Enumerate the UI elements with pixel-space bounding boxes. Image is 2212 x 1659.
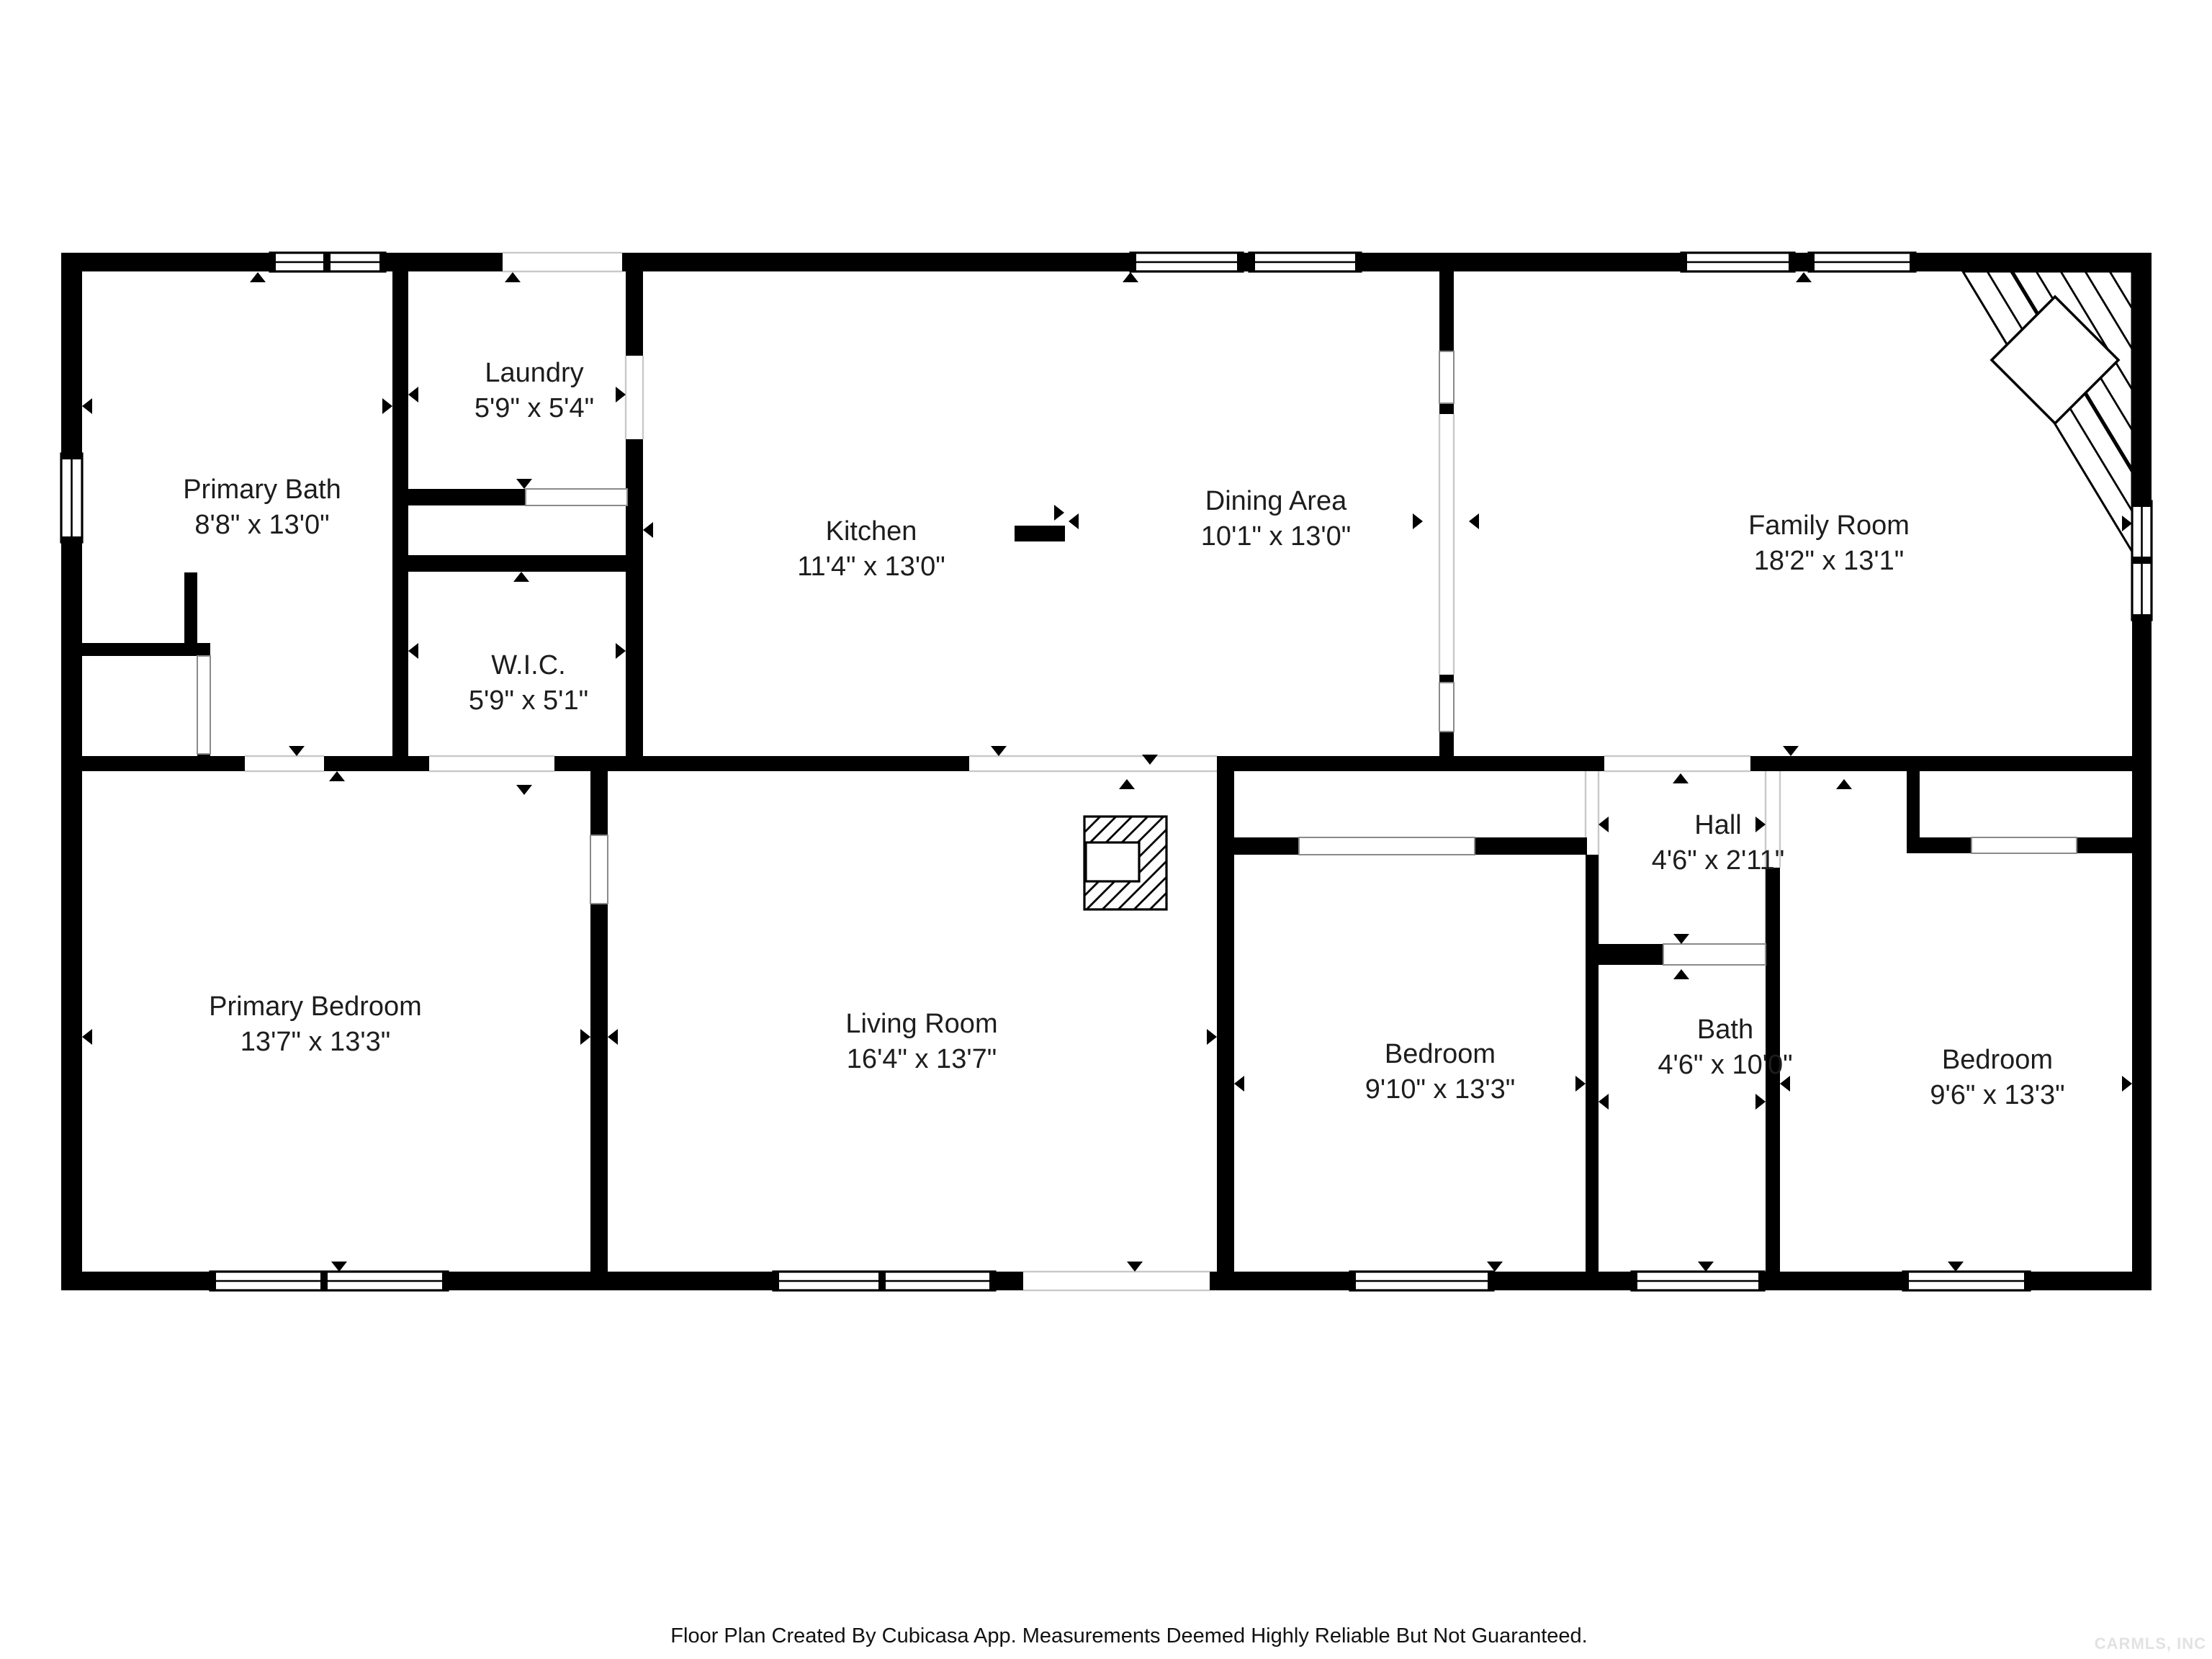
wall (61, 253, 82, 454)
wall (1794, 253, 1809, 271)
window (61, 454, 82, 542)
wall (1217, 756, 1604, 771)
door-opening (1439, 683, 1454, 732)
wall (622, 253, 1130, 271)
wall (61, 253, 270, 271)
room-name: Bedroom (1942, 1045, 2053, 1075)
wall (1493, 1272, 1632, 1290)
window (1632, 1272, 1764, 1290)
wall (2132, 253, 2152, 501)
window (1249, 253, 1361, 271)
wall (626, 271, 643, 356)
room-name: Laundry (485, 358, 583, 388)
room-name: Kitchen (826, 516, 917, 547)
wall (1217, 837, 1299, 855)
wall (324, 756, 429, 771)
room-name: Primary Bedroom (209, 992, 422, 1022)
wall (590, 904, 608, 1272)
window (2132, 501, 2152, 620)
window (773, 1272, 995, 1290)
window (1350, 1272, 1493, 1290)
window (1681, 253, 1794, 271)
wall (61, 756, 245, 771)
room-dimensions: 18'2" x 13'1" (1754, 546, 1904, 576)
room-name: Hall (1694, 810, 1741, 840)
wall (1217, 756, 1234, 1272)
wall (2077, 837, 2132, 853)
footer-disclaimer: Floor Plan Created By Cubicasa App. Meas… (0, 1624, 2212, 1648)
wall (1586, 855, 1599, 1272)
room-dimensions: 16'4" x 13'7" (847, 1044, 997, 1074)
wall (1907, 769, 1920, 837)
room-name: Dining Area (1205, 486, 1347, 516)
wall (1475, 837, 1587, 855)
room-name: Bath (1697, 1015, 1753, 1045)
wall (590, 756, 608, 835)
room-dimensions: 8'8" x 13'0" (194, 510, 329, 540)
window (270, 253, 385, 271)
wall (2132, 620, 2152, 1290)
room-name: Family Room (1748, 511, 1910, 541)
room-dimensions: 4'6" x 10'0" (1658, 1050, 1792, 1080)
mls-watermark: CARMLS, INC (2095, 1635, 2206, 1653)
room-name: W.I.C. (491, 650, 565, 680)
floorplan-page: Primary Bath8'8" x 13'0"Laundry5'9" x 5'… (0, 0, 2212, 1659)
wall (402, 555, 643, 572)
wall (82, 643, 210, 656)
room-dimensions: 13'7" x 13'3" (240, 1027, 390, 1057)
window (1809, 253, 1915, 271)
window (1903, 1272, 2030, 1290)
wall (1361, 253, 1681, 271)
wall (1915, 253, 2152, 271)
window (1130, 253, 1243, 271)
wall (1439, 732, 1454, 771)
wall (402, 489, 526, 505)
door-opening (1972, 837, 2077, 853)
room-dimensions: 5'9" x 5'1" (469, 685, 588, 716)
wall (1750, 756, 2132, 771)
room-dimensions: 5'9" x 5'4" (475, 393, 594, 423)
window (210, 1272, 448, 1290)
wall (1015, 526, 1065, 541)
room-dimensions: 9'10" x 13'3" (1365, 1074, 1515, 1105)
wall (554, 756, 969, 771)
wall (1907, 837, 1972, 853)
room-name: Primary Bath (183, 475, 341, 505)
room-dimensions: 11'4" x 13'0" (797, 552, 945, 582)
door-opening (1663, 944, 1766, 965)
room-dimensions: 4'6" x 2'11" (1652, 845, 1784, 876)
wall (385, 253, 503, 271)
wall (995, 1272, 1023, 1290)
wall (184, 572, 197, 643)
room-name: Living Room (845, 1009, 997, 1039)
floorplan-canvas: Primary Bath8'8" x 13'0"Laundry5'9" x 5'… (0, 0, 2212, 1659)
wall (1439, 271, 1454, 351)
wall (1439, 403, 1454, 414)
room-dimensions: 9'6" x 13'3" (1930, 1080, 2064, 1110)
door-opening (1299, 837, 1475, 855)
door-opening (590, 835, 608, 904)
door-opening (197, 656, 210, 754)
door-opening (1439, 351, 1454, 403)
wall (61, 1272, 210, 1290)
room-dimensions: 10'1" x 13'0" (1201, 521, 1351, 552)
wall (1439, 675, 1454, 683)
door-opening (526, 489, 627, 505)
wall (1586, 944, 1663, 965)
wall (392, 271, 408, 771)
wall (448, 1272, 773, 1290)
wall (1764, 1272, 1903, 1290)
wall (626, 439, 643, 771)
room-name: Bedroom (1385, 1039, 1496, 1069)
wall (1210, 1272, 1350, 1290)
wall (61, 542, 82, 1290)
